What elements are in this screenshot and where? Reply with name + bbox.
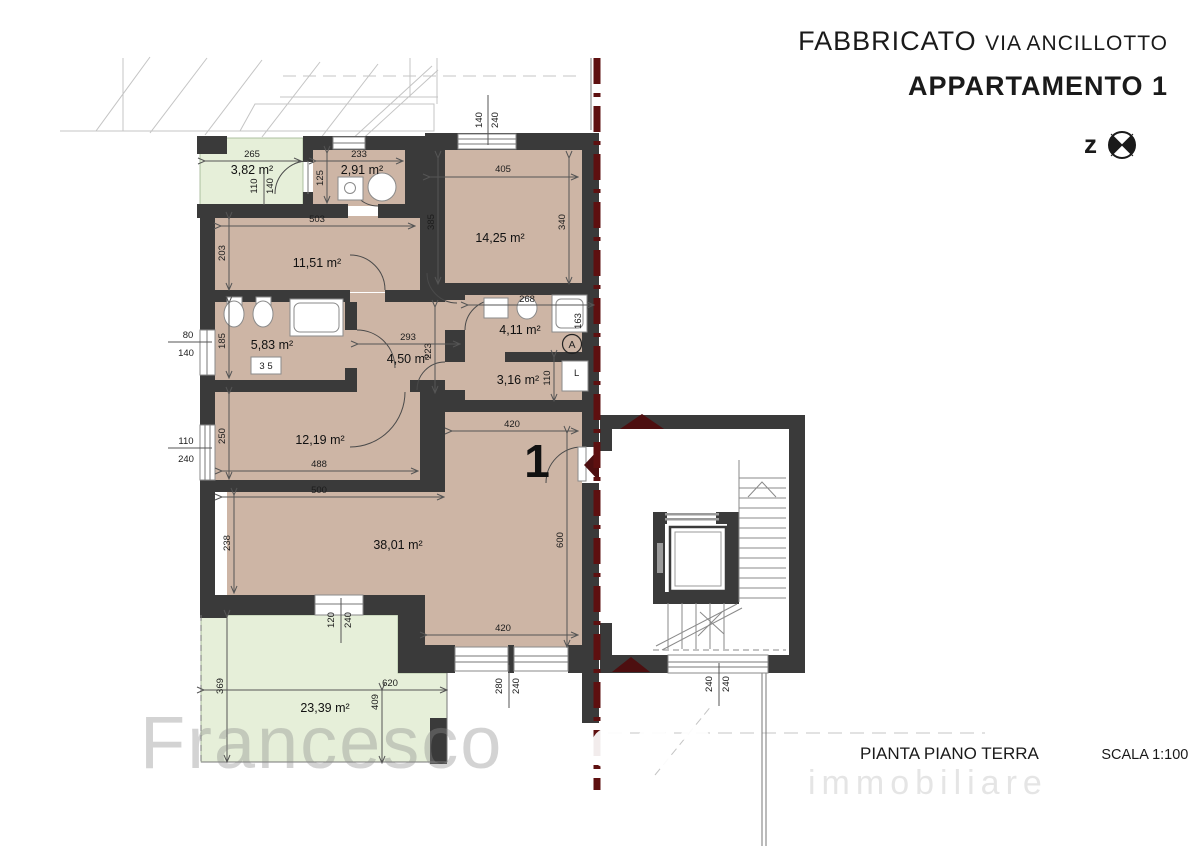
window-living-2: [514, 647, 568, 671]
dim-terrace-w: 620: [382, 678, 398, 689]
room-label-garden: 3,82 m²: [231, 163, 273, 177]
floor-plan-drawing: 3 5 L: [0, 0, 1200, 848]
dim-win-terrace-2: 240: [343, 612, 354, 628]
dim-door-garden-1: 110: [249, 178, 260, 193]
dim-hall-w: 293: [400, 332, 416, 343]
room-label-terrace: 23,39 m²: [300, 701, 349, 715]
window-living-1: [455, 647, 508, 671]
unit-number: 1: [524, 435, 550, 487]
dim-living-h-l: 238: [222, 535, 233, 551]
window-left-bottom: [200, 425, 215, 480]
elevator: [653, 512, 739, 604]
dim-terrace-h2: 409: [370, 694, 381, 710]
building-title: FABBRICATO: [798, 26, 977, 56]
toilet: [224, 301, 244, 327]
dim-bed3-h: 250: [217, 428, 228, 444]
washer-label: L: [574, 368, 579, 379]
window-stair: [668, 655, 768, 673]
dim-win-stair-1: 240: [704, 676, 715, 692]
room-label-bedroom2: 11,51 m²: [293, 256, 341, 270]
dim-bath2-w: 268: [519, 294, 535, 305]
dim-living-w-top: 420: [504, 419, 520, 430]
elevator-cab: [670, 527, 726, 591]
dim-bed2-h: 203: [217, 245, 228, 261]
room-label-bath-main: 5,83 m²: [251, 338, 293, 352]
window-left-top: [200, 330, 215, 375]
street-title: VIA ANCILLOTTO: [985, 32, 1168, 55]
dim-win-living-1: 280: [494, 678, 505, 694]
dim-bath2-h: 163: [573, 313, 584, 329]
dim-bath-top-w: 233: [351, 149, 367, 160]
dim-win-terrace-1: 120: [326, 612, 337, 628]
window-bath-top: [333, 137, 365, 149]
dim-bed3-w: 488: [311, 459, 327, 470]
room-label-hall: 4,50 m²: [387, 352, 429, 366]
scale-label: SCALA 1:100: [1101, 747, 1188, 763]
apartment-title: APPARTAMENTO 1: [798, 71, 1168, 102]
compass-icon: [1109, 132, 1135, 158]
dim-storage-h: 110: [542, 370, 553, 385]
dim-win-left-top-1: 80: [183, 330, 194, 341]
stair-flight-up: [739, 460, 786, 602]
dim-win-living-2: 240: [511, 678, 522, 694]
room-label-storage: 3,16 m²: [497, 373, 539, 387]
dim-bed1-h-r: 340: [557, 214, 568, 230]
entrance-door-leaf: [578, 447, 586, 481]
dim-bed2-w: 503: [309, 214, 325, 225]
dim-bed1-h-l: 385: [426, 214, 437, 230]
radiator-label: 3 5: [259, 361, 272, 372]
title-block: FABBRICATO VIA ANCILLOTTO APPARTAMENTO 1: [798, 26, 1168, 102]
north-letter: z: [1084, 129, 1097, 159]
dim-living-w-bottom: 420: [495, 623, 511, 634]
dim-bath-main-h: 185: [217, 333, 228, 349]
dim-terrace-h: 369: [215, 678, 226, 694]
plan-title: PIANTA PIANO TERRA: [860, 744, 1039, 764]
footer: PIANTA PIANO TERRA SCALA 1:100: [860, 744, 1190, 764]
room-label-bath-top: 2,91 m²: [341, 163, 383, 177]
dim-win-left-bottom-1: 110: [178, 436, 193, 447]
dim-bed1-w: 405: [495, 164, 511, 175]
dim-win-top-2: 240: [490, 112, 501, 128]
room-label-living: 38,01 m²: [373, 538, 422, 552]
stair-up-arrow: [748, 482, 776, 497]
toilet-round: [368, 173, 396, 201]
section-mark-letter: A: [568, 339, 575, 351]
window-bed1-top: [458, 134, 516, 149]
room-label-bedroom1: 14,25 m²: [475, 231, 524, 245]
dim-win-top-1: 140: [474, 112, 485, 128]
dim-win-stair-2: 240: [721, 676, 732, 692]
dim-garden-w: 265: [244, 149, 260, 160]
room-label-bedroom3: 12,19 m²: [295, 433, 344, 447]
room-label-bath2: 4,11 m²: [499, 323, 540, 337]
dim-bed3-w2: 500: [311, 485, 327, 496]
dim-win-left-bottom-2: 240: [178, 454, 194, 465]
washbasin-2: [484, 298, 508, 318]
floor-plan-sheet: 3 5 L: [0, 0, 1200, 848]
dim-living-h: 600: [555, 532, 566, 548]
north-symbol: z: [1078, 126, 1142, 169]
dim-door-garden-2: 140: [265, 178, 276, 194]
dim-bath-top-h: 125: [315, 170, 326, 186]
window-terrace-door: [315, 595, 363, 615]
elevator-counterweight: [657, 543, 663, 573]
stair-flight-down: [653, 603, 786, 650]
dim-win-left-top-2: 140: [178, 348, 194, 359]
bidet: [253, 301, 273, 327]
stairwell: [600, 414, 805, 673]
